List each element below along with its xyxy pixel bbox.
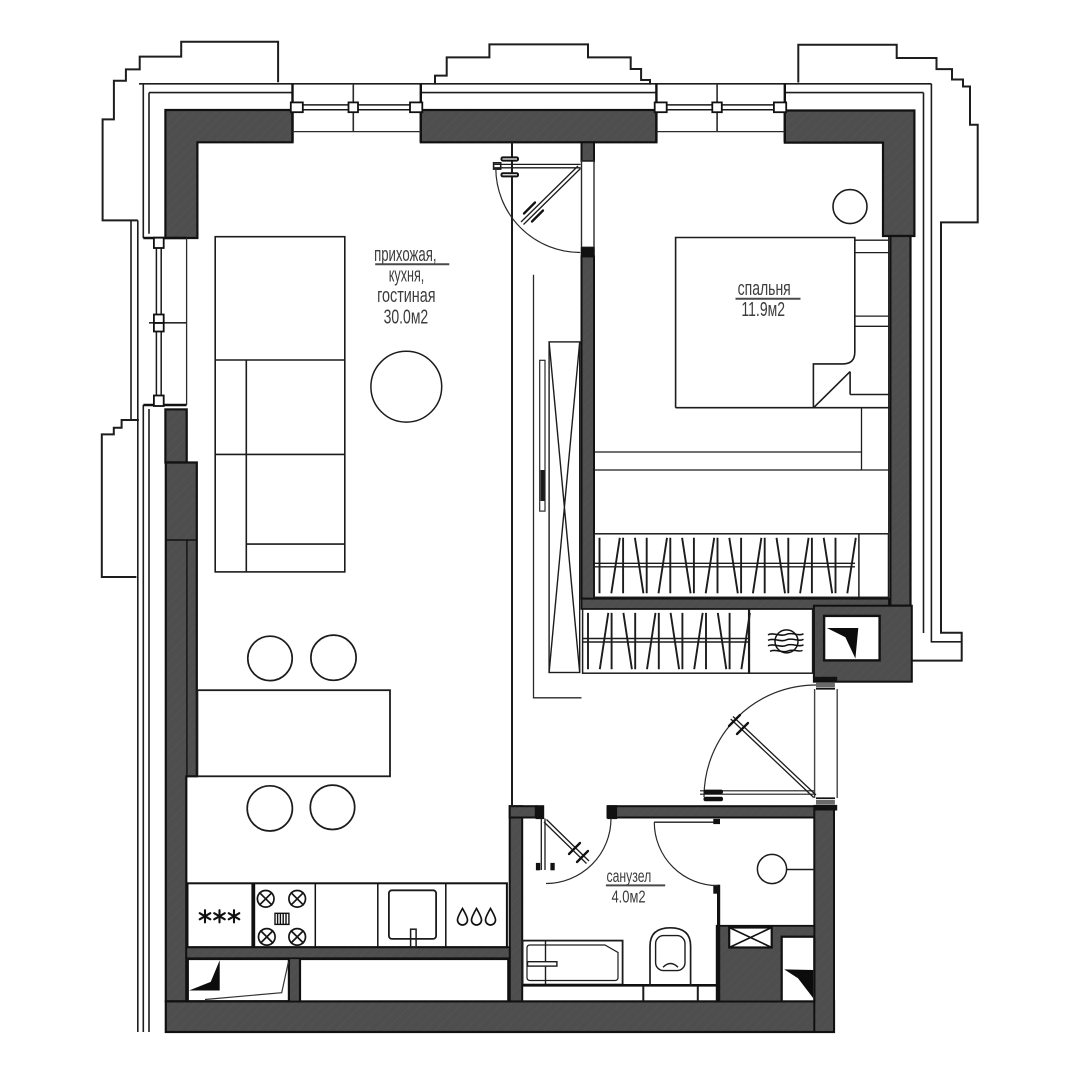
svg-text:4.0м2: 4.0м2: [611, 888, 645, 908]
svg-text:11.9м2: 11.9м2: [741, 297, 785, 320]
svg-text:30.0м2: 30.0м2: [384, 305, 429, 328]
svg-text:санузел: санузел: [607, 867, 652, 887]
svg-text:прихожая,: прихожая,: [374, 243, 436, 265]
svg-text:гостиная: гостиная: [377, 284, 435, 307]
